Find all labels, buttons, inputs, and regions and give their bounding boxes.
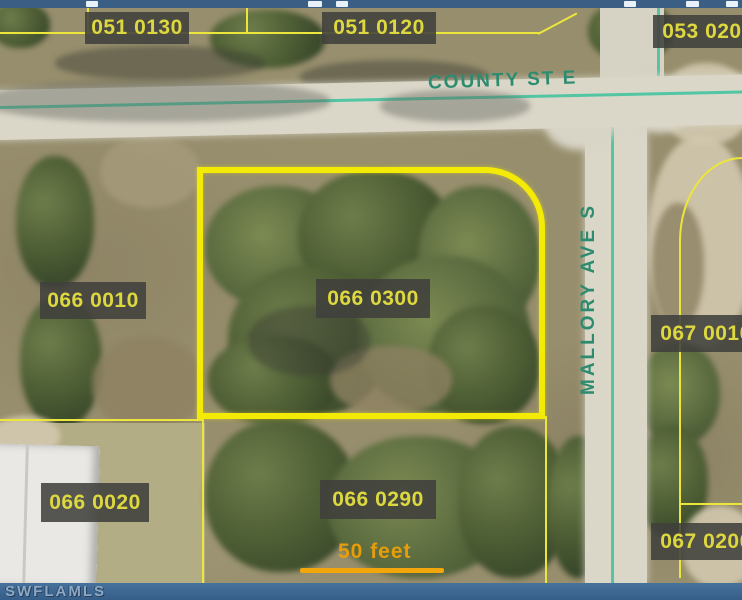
chrome-fragment xyxy=(624,1,636,7)
chrome-fragment xyxy=(308,1,322,7)
terrain-patch xyxy=(100,136,200,208)
parcel-line xyxy=(202,419,204,583)
footer-bar: SWFLAMLS xyxy=(0,583,742,600)
tree-shadow-on-road xyxy=(380,90,530,122)
chrome-fragment xyxy=(726,1,738,7)
parcel-line xyxy=(246,8,248,34)
tree-canopy xyxy=(16,156,94,288)
parcel-line xyxy=(0,32,540,34)
aerial-map[interactable]: 051 0130 051 0120 053 0200 066 0010 066 … xyxy=(0,8,742,583)
watermark: SWFLAMLS xyxy=(5,583,106,600)
parcel-label-066-0300: 066 0300 xyxy=(316,279,430,318)
scale-bar xyxy=(300,568,444,573)
parcel-label-066-0010: 066 0010 xyxy=(40,282,146,319)
tree-canopy xyxy=(0,8,50,48)
chrome-fragment xyxy=(336,1,348,7)
parcel-label-053-0200: 053 0200 xyxy=(653,15,742,48)
browser-chrome-strip xyxy=(0,0,742,8)
road-centerline xyxy=(611,100,614,583)
parcel-label-067-0010: 067 0010 xyxy=(651,315,742,352)
parcel-label-051-0120: 051 0120 xyxy=(322,12,436,44)
street-label-mallory-ave-s: MALLORY AVE S xyxy=(578,190,608,408)
roof-line xyxy=(22,444,29,583)
chrome-fragment xyxy=(686,1,699,7)
scale-bar-label: 50 feet xyxy=(338,540,412,564)
parcel-label-066-0020: 066 0020 xyxy=(41,483,149,522)
tree-shadow-on-road xyxy=(0,80,330,122)
chrome-fragment xyxy=(86,1,98,7)
parcel-line xyxy=(538,12,578,34)
parcel-line xyxy=(545,416,547,583)
parcel-label-051-0130: 051 0130 xyxy=(85,12,189,44)
parcel-label-066-0290: 066 0290 xyxy=(320,480,436,519)
parcel-label-067-0200: 067 0200 xyxy=(651,523,742,560)
tree-shadow xyxy=(55,46,265,80)
parcel-line xyxy=(679,503,742,505)
parcel-line xyxy=(0,419,202,421)
mls-map-window: 051 0130 051 0120 053 0200 066 0010 066 … xyxy=(0,0,742,600)
terrain-patch xyxy=(92,338,204,430)
